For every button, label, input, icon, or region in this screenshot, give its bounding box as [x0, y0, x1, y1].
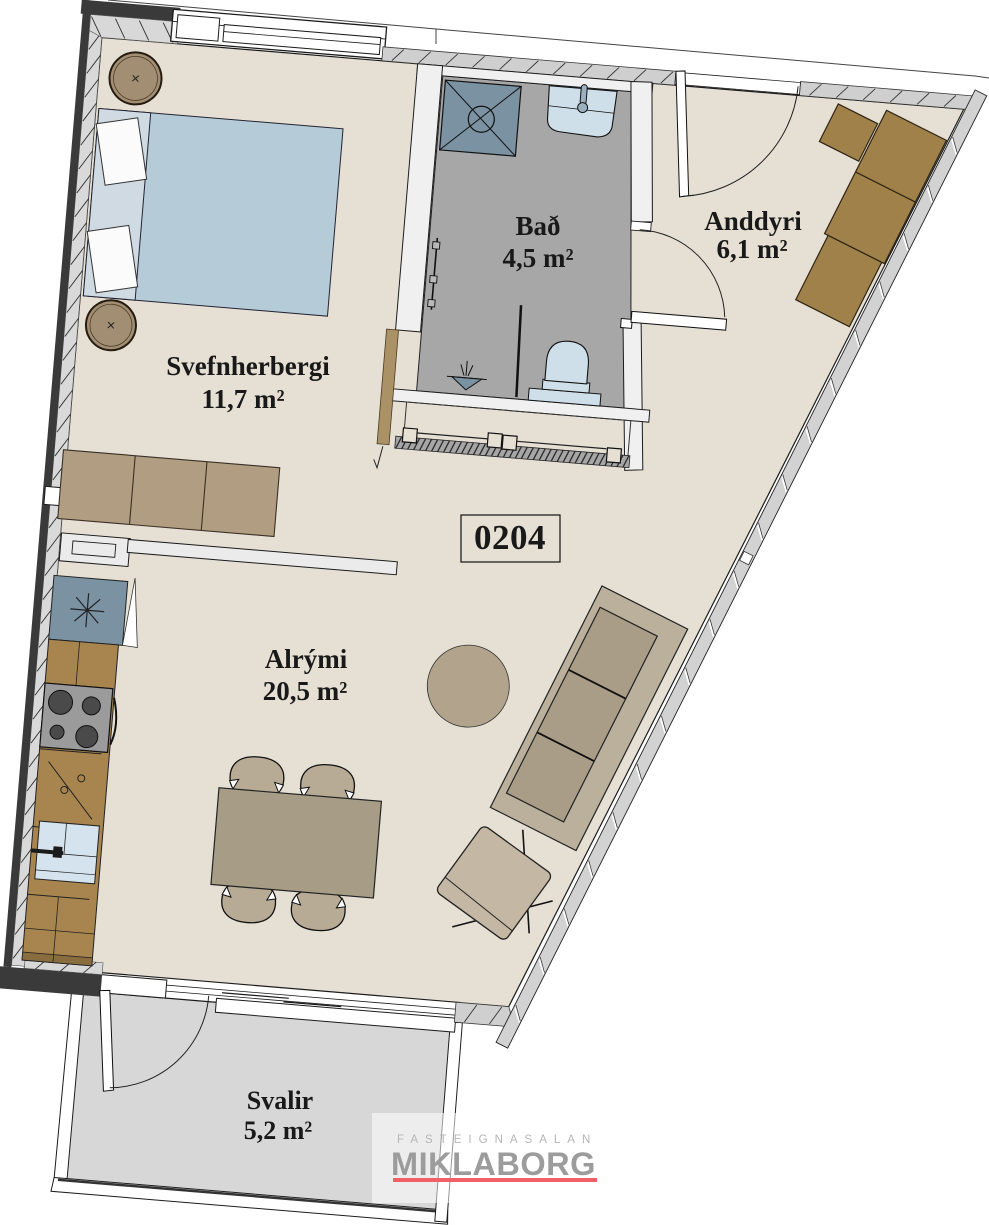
- svg-text:11,7 m²: 11,7 m²: [201, 384, 284, 414]
- svg-text:20,5 m²: 20,5 m²: [263, 676, 348, 706]
- svg-text:5,2 m²: 5,2 m²: [244, 1116, 313, 1145]
- svg-text:4,5 m²: 4,5 m²: [502, 243, 573, 273]
- svg-text:Svalir: Svalir: [247, 1086, 313, 1115]
- svg-text:Alrými: Alrými: [265, 644, 348, 674]
- svg-text:Svefnherbergi: Svefnherbergi: [166, 351, 330, 381]
- svg-text:Anddyri: Anddyri: [704, 206, 802, 236]
- svg-text:0204: 0204: [474, 518, 546, 557]
- svg-text:Bað: Bað: [515, 211, 560, 241]
- svg-text:MIKLABORG: MIKLABORG: [391, 1146, 596, 1182]
- svg-text:FASTEIGNASALAN: FASTEIGNASALAN: [397, 1134, 597, 1146]
- svg-text:6,1 m²: 6,1 m²: [716, 234, 787, 264]
